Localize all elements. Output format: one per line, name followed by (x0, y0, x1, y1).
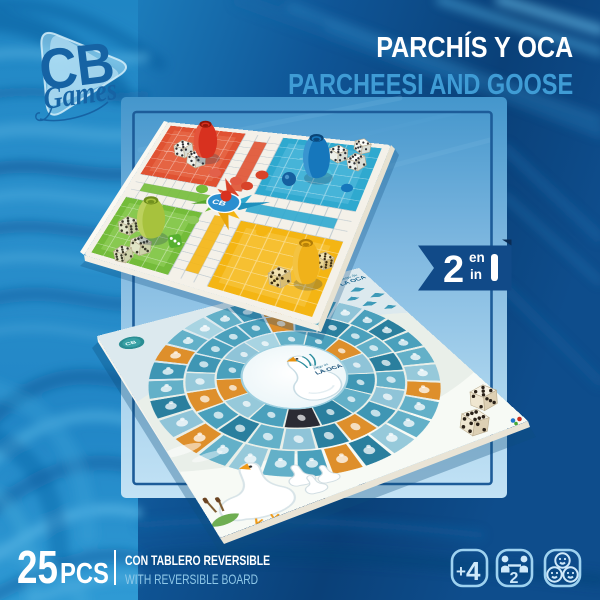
svg-text:+: + (456, 562, 466, 581)
svg-text:en: en (469, 250, 485, 265)
svg-text:2: 2 (443, 249, 464, 291)
svg-text:in: in (470, 267, 482, 282)
svg-text:2: 2 (510, 570, 519, 587)
svg-text:4: 4 (466, 556, 481, 586)
